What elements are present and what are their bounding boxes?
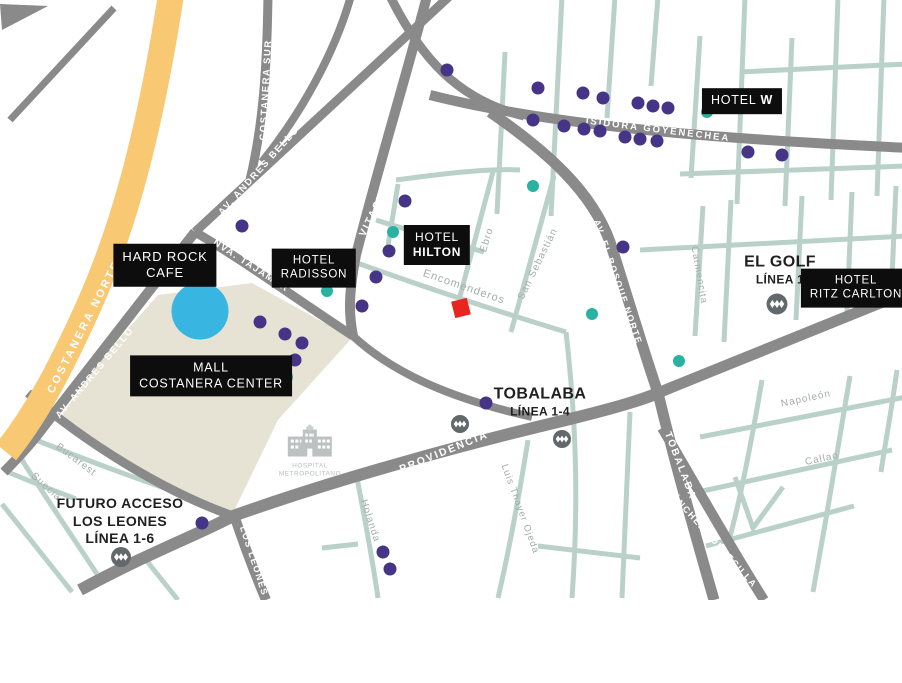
restaurant-dot bbox=[399, 195, 412, 208]
restaurant-dot bbox=[662, 102, 675, 115]
restaurant-dot bbox=[617, 241, 630, 254]
restaurant-dot bbox=[296, 337, 309, 350]
street-label-holanda: Holanda bbox=[358, 498, 382, 543]
restaurant-dot bbox=[480, 397, 493, 410]
restaurant-dot bbox=[632, 97, 645, 110]
road-label-los-leones: LOS LEONES bbox=[238, 525, 270, 598]
hospital-label-line1: HOSPITAL bbox=[279, 463, 341, 471]
map-canvas: COSTANERA NORTECOSTANERA SURAV. ANDRES B… bbox=[0, 0, 902, 683]
restaurant-dot bbox=[356, 300, 369, 313]
hotel-ritz-carlton-label: HOTELRITZ CARLTON bbox=[801, 269, 902, 308]
road-label-apoquindo: APOQUINDO bbox=[737, 314, 819, 351]
restaurant-dot bbox=[279, 328, 292, 341]
road-label-erro: ERRO bbox=[3, 50, 41, 72]
street-label-napoleon: Napoleón bbox=[780, 388, 832, 409]
restaurant-dot bbox=[383, 245, 396, 258]
restaurant-dot bbox=[647, 100, 660, 113]
restaurant-dot bbox=[254, 316, 267, 329]
hotel-dot bbox=[586, 308, 598, 320]
restaurant-dot bbox=[619, 131, 632, 144]
street-label-san-sebastian: San Sebastián bbox=[516, 227, 560, 302]
restaurant-dot bbox=[577, 87, 590, 100]
restaurant-dot bbox=[634, 133, 647, 146]
restaurant-dot bbox=[370, 271, 383, 284]
road-label-costanera-norte: COSTANERA NORTE bbox=[45, 259, 123, 396]
street-label-bucarest: Bucarest bbox=[54, 441, 99, 478]
street-label-luis-thayer-ojeda: Luis Thayer Ojeda bbox=[499, 463, 542, 556]
restaurant-dot bbox=[651, 135, 664, 148]
station-label-futuro-acceso-los-leones: FUTURO ACCESOLOS LEONESLÍNEA 1-6 bbox=[57, 495, 184, 548]
road-label-av-el-bosque-norte: AV. EL BOSQUE NORTE bbox=[592, 218, 644, 345]
street-label-callao: Callao bbox=[804, 450, 840, 468]
hotel-dot bbox=[527, 180, 539, 192]
road-label-sanchez-fontecilla: SÁNCHEZ FONTECILLA bbox=[665, 486, 759, 589]
restaurant-dot bbox=[742, 146, 755, 159]
restaurant-dot bbox=[527, 114, 540, 127]
restaurant-dot bbox=[196, 517, 209, 530]
restaurant-dot bbox=[384, 563, 397, 576]
road-label-providencia: PROVIDENCIA bbox=[398, 429, 491, 476]
hotel-hilton-label: HOTELHILTON bbox=[404, 225, 470, 265]
restaurant-dot bbox=[578, 123, 591, 136]
hotel-w-label: HOTEL W bbox=[702, 88, 782, 114]
hospital-metropolitano: HOSPITALMETROPOLITANO bbox=[279, 425, 341, 480]
hotel-dot bbox=[673, 355, 685, 367]
restaurant-dot bbox=[558, 120, 571, 133]
red-location-marker bbox=[451, 298, 471, 318]
hospital-label-line2: METROPOLITANO bbox=[279, 471, 341, 479]
mall-costanera-center-label: MALLCOSTANERA CENTER bbox=[130, 355, 292, 396]
station-label-tobalaba: TOBALABALÍNEA 1-4 bbox=[494, 385, 587, 420]
hotel-radisson-label: HOTELRADISSON bbox=[272, 249, 356, 288]
metro-tobalaba-icon bbox=[553, 430, 572, 449]
restaurant-dot bbox=[532, 82, 545, 95]
restaurant-dot bbox=[597, 92, 610, 105]
restaurant-dot bbox=[594, 125, 607, 138]
street-label-carmencita: Carmencita bbox=[688, 245, 709, 305]
hard-rock-cafe-label: HARD ROCKCAFE bbox=[113, 244, 216, 287]
hotel-dot bbox=[387, 226, 399, 238]
metro-el-golf-icon bbox=[766, 293, 788, 315]
legend: COSTANERA CENTER Mall Shopping Center RE… bbox=[0, 600, 902, 683]
metro-los-leones-icon bbox=[111, 547, 132, 568]
restaurant-dot bbox=[776, 149, 789, 162]
road-label-costanera-sur: COSTANERA SUR bbox=[258, 39, 274, 141]
costanera-center-marker bbox=[172, 283, 229, 340]
restaurant-dot bbox=[441, 64, 454, 77]
restaurant-dot bbox=[377, 546, 390, 559]
street-label-ebro: Ebro bbox=[478, 226, 496, 253]
hospital-icon bbox=[287, 425, 333, 457]
metro-providencia-icon bbox=[451, 415, 470, 434]
restaurant-dot bbox=[236, 220, 249, 233]
